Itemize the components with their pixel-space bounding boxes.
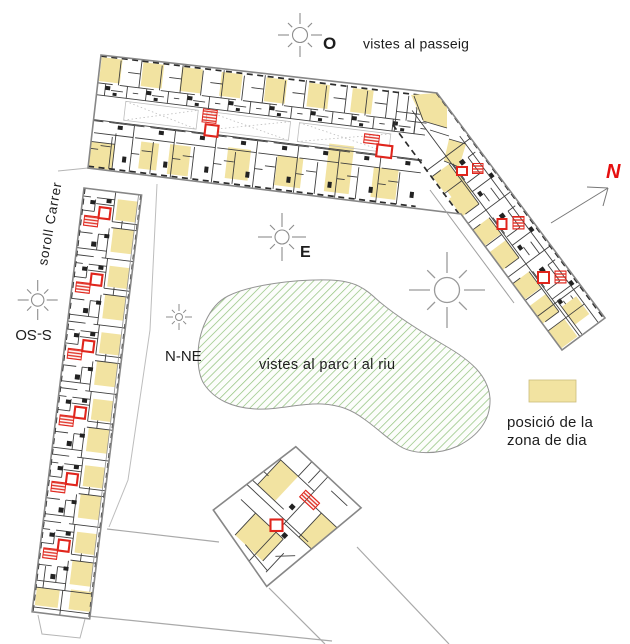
svg-text:vistes al passeig: vistes al passeig (363, 36, 469, 52)
svg-text:N: N (606, 161, 621, 183)
svg-text:O: O (323, 34, 336, 53)
svg-text:N-NE: N-NE (165, 348, 202, 365)
svg-text:vistes al parc i al riu: vistes al parc i al riu (259, 357, 396, 373)
svg-text:E: E (300, 244, 311, 261)
svg-text:zona de dia: zona de dia (507, 432, 587, 449)
svg-text:S-SO: S-SO (15, 326, 52, 343)
svg-text:posició de la: posició de la (507, 414, 593, 431)
